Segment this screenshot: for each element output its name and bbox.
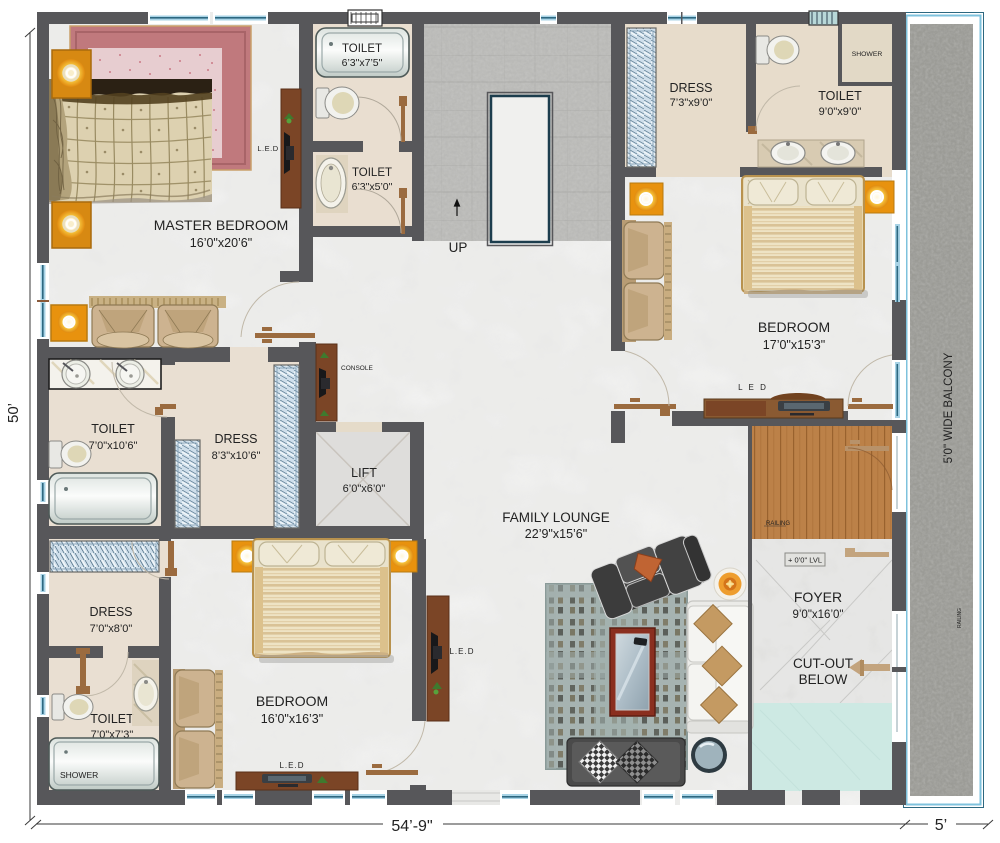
svg-text:TOILET: TOILET (342, 43, 382, 55)
svg-text:7’0"x10’6": 7’0"x10’6" (89, 440, 138, 452)
svg-text:UP: UP (449, 240, 468, 255)
svg-text:BEDROOM: BEDROOM (758, 319, 830, 335)
svg-text:7’0"x8’0": 7’0"x8’0" (90, 623, 133, 635)
svg-text:17’0"x15’3": 17’0"x15’3" (763, 338, 825, 352)
svg-text:54’-9": 54’-9" (391, 818, 432, 835)
svg-text:DRESS: DRESS (669, 81, 712, 95)
svg-text:L.E.D: L.E.D (279, 761, 304, 770)
svg-text:DRESS: DRESS (214, 432, 257, 446)
svg-text:FAMILY LOUNGE: FAMILY LOUNGE (502, 510, 610, 525)
svg-text:22’9"x15’6": 22’9"x15’6" (525, 527, 587, 541)
svg-text:6’3"x7’5": 6’3"x7’5" (342, 57, 383, 69)
svg-text:RAILING: RAILING (957, 608, 963, 628)
svg-text:16’0"x20’6": 16’0"x20’6" (190, 236, 252, 250)
svg-text:9’0"x16’0": 9’0"x16’0" (792, 609, 843, 621)
svg-text:BEDROOM: BEDROOM (256, 693, 328, 709)
svg-text:5’: 5’ (935, 817, 947, 834)
svg-text:FOYER: FOYER (794, 589, 842, 605)
svg-text:CONSOLE: CONSOLE (341, 365, 373, 372)
svg-text:TOILET: TOILET (818, 89, 862, 103)
svg-text:9’0"x9’0": 9’0"x9’0" (819, 106, 862, 118)
svg-text:+ 0’0" LVL: + 0’0" LVL (788, 556, 822, 565)
svg-text:TOILET: TOILET (91, 422, 135, 436)
svg-text:LIFT: LIFT (351, 466, 377, 480)
svg-text:BELOW: BELOW (799, 672, 848, 687)
svg-text:8’3"x10’6": 8’3"x10’6" (212, 450, 261, 462)
svg-text:5’0" WIDE BALCONY: 5’0" WIDE BALCONY (943, 352, 955, 463)
svg-text:CUT-OUT: CUT-OUT (793, 656, 853, 671)
svg-text:L.E.D: L.E.D (449, 647, 474, 656)
svg-text:SHOWER: SHOWER (852, 51, 883, 58)
svg-text:MASTER BEDROOM: MASTER BEDROOM (154, 217, 289, 233)
svg-text:TOILET: TOILET (352, 167, 392, 179)
svg-text:TOILET: TOILET (90, 712, 134, 726)
svg-text:L E D: L E D (738, 383, 768, 392)
svg-text:50’: 50’ (5, 403, 22, 423)
svg-text:16’0"x16’3": 16’0"x16’3" (261, 712, 323, 726)
svg-text:6’0"x6’0": 6’0"x6’0" (343, 483, 386, 495)
svg-text:L.E.D: L.E.D (257, 144, 278, 153)
svg-text:SHOWER: SHOWER (60, 770, 98, 780)
svg-text:DRESS: DRESS (89, 605, 132, 619)
svg-text:7’3"x9’0": 7’3"x9’0" (670, 97, 713, 109)
